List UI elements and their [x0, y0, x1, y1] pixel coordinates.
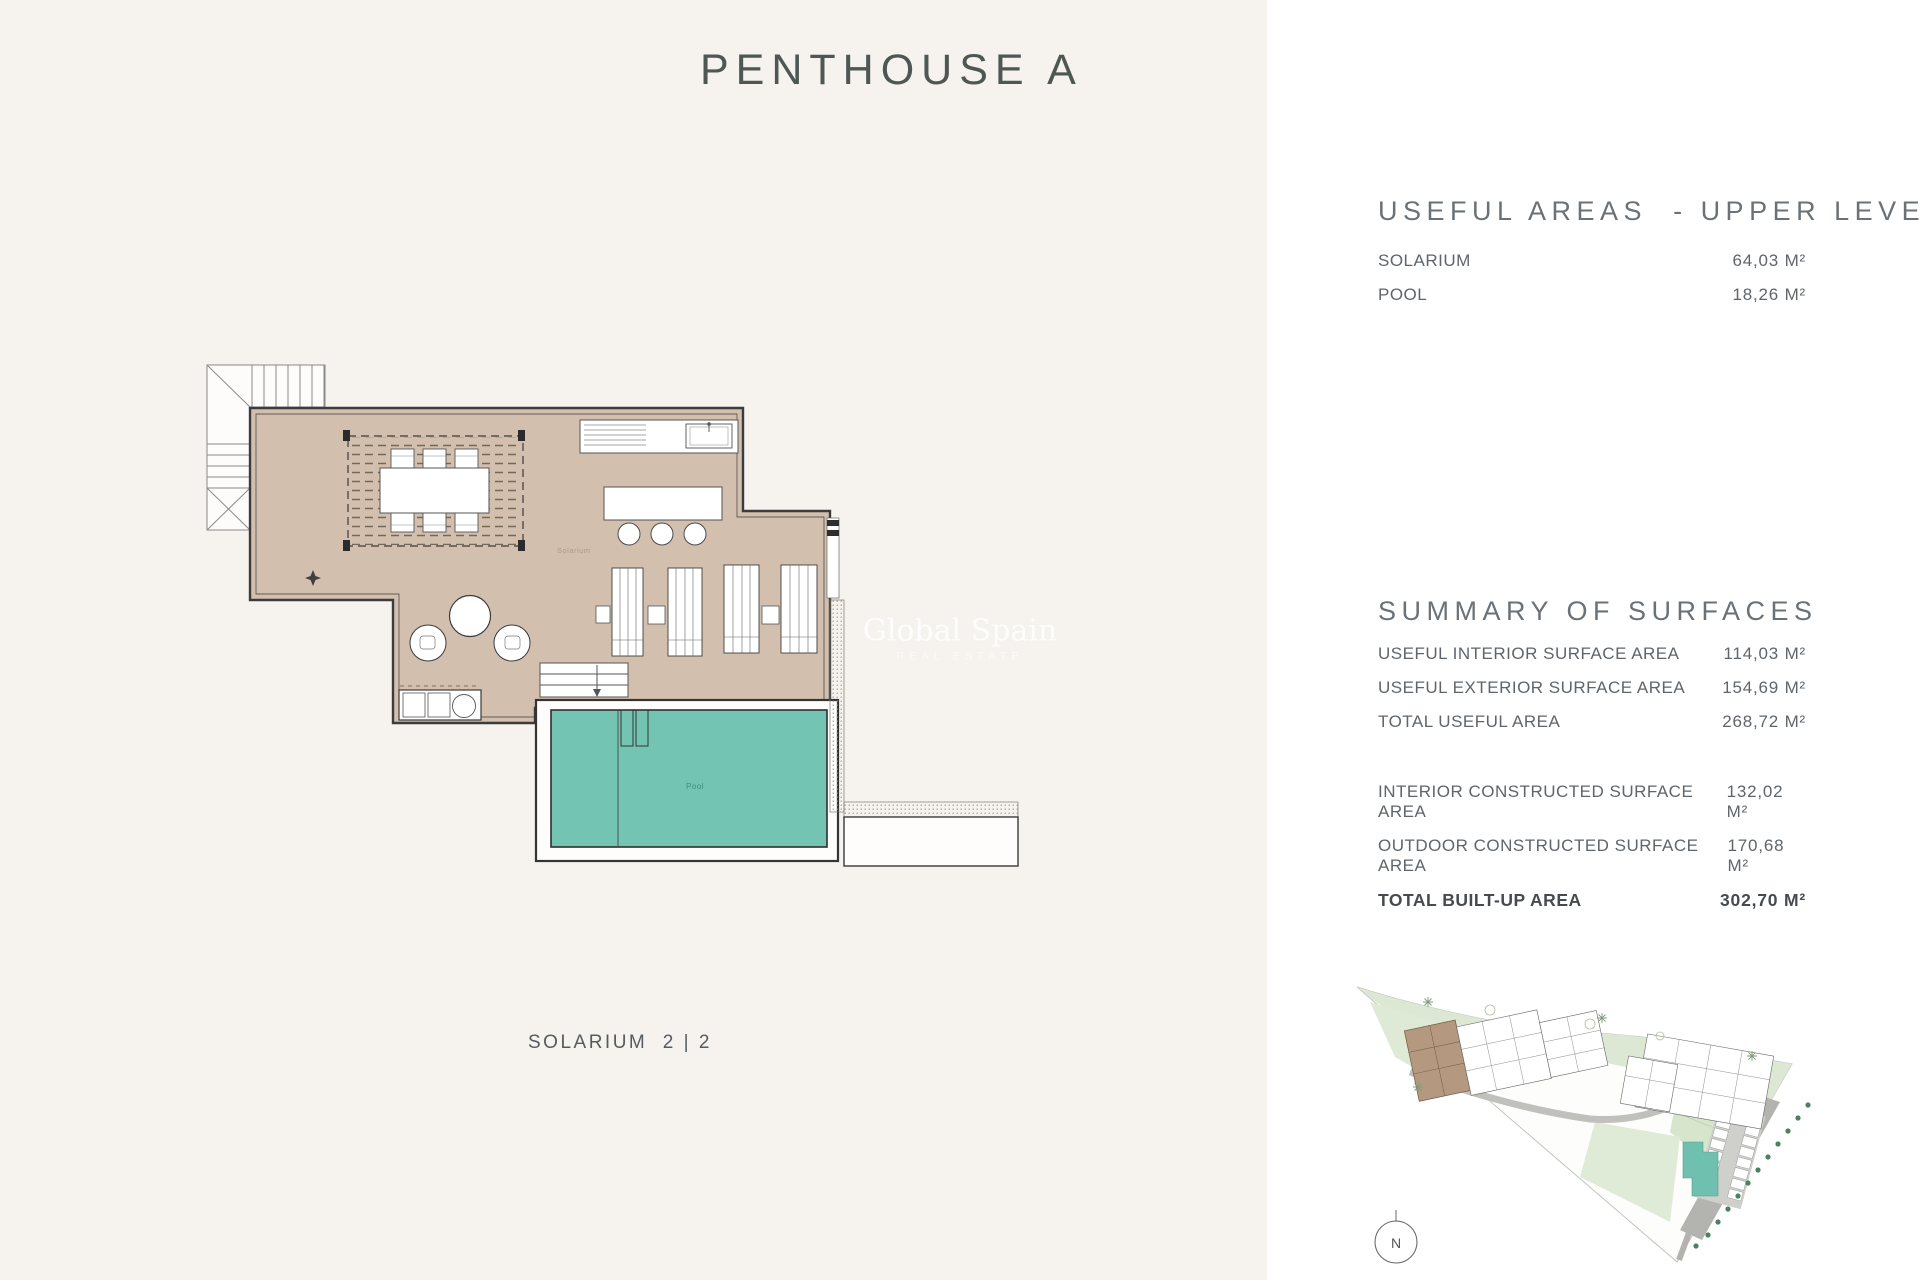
- table-row: USEFUL EXTERIOR SURFACE AREA 154,69 M²: [1378, 678, 1806, 698]
- egg-chair: [410, 625, 446, 661]
- row-value: 268,72 M²: [1722, 712, 1806, 732]
- row-label: OUTDOOR CONSTRUCTED SURFACE AREA: [1378, 836, 1728, 876]
- round-table: [450, 596, 491, 637]
- table-row: INTERIOR CONSTRUCTED SURFACE AREA 132,02…: [1378, 782, 1806, 822]
- row-label: INTERIOR CONSTRUCTED SURFACE AREA: [1378, 782, 1727, 822]
- egg-chair: [494, 625, 530, 661]
- pool-steps: [540, 663, 628, 697]
- compass-n-label: N: [1391, 1235, 1401, 1251]
- pool: [551, 710, 827, 847]
- dining-table: [380, 468, 489, 513]
- sliding-door: [827, 518, 839, 598]
- bbq-counter: [399, 686, 481, 720]
- row-value: 132,02 M²: [1727, 782, 1806, 822]
- plan-caption: SOLARIUM 2 | 2: [528, 1032, 712, 1054]
- table-row: TOTAL USEFUL AREA 268,72 M²: [1378, 712, 1806, 732]
- pool-deck: Pool: [536, 700, 838, 861]
- sink: [686, 422, 732, 448]
- table-row: USEFUL INTERIOR SURFACE AREA 114,03 M²: [1378, 644, 1806, 664]
- north-compass: N: [1375, 1210, 1417, 1263]
- summary-heading: SUMMARY OF SURFACES: [1378, 596, 1818, 627]
- row-label: POOL: [1378, 285, 1427, 305]
- bar-stools: [618, 523, 706, 545]
- site-plan: N: [1340, 972, 1860, 1280]
- page-title: PENTHOUSE A: [700, 46, 1083, 95]
- row-value: 64,03 M²: [1733, 251, 1807, 271]
- brochure-page: PENTHOUSE A USEFUL AREAS - UPPER LEVEL S…: [0, 0, 1920, 1280]
- row-label: TOTAL BUILT-UP AREA: [1378, 890, 1582, 911]
- terrace-label: Solarium: [557, 546, 591, 555]
- row-value: 302,70 M²: [1720, 890, 1806, 911]
- kitchen-counter: [580, 420, 738, 453]
- row-value: 18,26 M²: [1733, 285, 1807, 305]
- pergola: [343, 430, 525, 551]
- row-label: TOTAL USEFUL AREA: [1378, 712, 1560, 732]
- useful-areas-table: SOLARIUM 64,03 M² POOL 18,26 M²: [1378, 251, 1806, 319]
- row-label: USEFUL EXTERIOR SURFACE AREA: [1378, 678, 1685, 698]
- summary-table: USEFUL INTERIOR SURFACE AREA 114,03 M² U…: [1378, 644, 1806, 925]
- floor-plan-drawing: Pool Solarium: [185, 350, 1040, 885]
- row-label: USEFUL INTERIOR SURFACE AREA: [1378, 644, 1679, 664]
- row-value: 170,68 M²: [1728, 836, 1806, 876]
- row-value: 154,69 M²: [1722, 678, 1806, 698]
- pool-label: Pool: [686, 782, 704, 791]
- table-row: POOL 18,26 M²: [1378, 285, 1806, 305]
- planter: [844, 817, 1018, 866]
- table-row: OUTDOOR CONSTRUCTED SURFACE AREA 170,68 …: [1378, 836, 1806, 876]
- row-spacer: [1378, 746, 1806, 782]
- total-row: TOTAL BUILT-UP AREA 302,70 M²: [1378, 890, 1806, 911]
- row-value: 114,03 M²: [1724, 644, 1806, 664]
- useful-areas-heading: USEFUL AREAS - UPPER LEVEL: [1378, 196, 1920, 227]
- row-label: SOLARIUM: [1378, 251, 1471, 271]
- boundary-walls: [830, 600, 1018, 866]
- table-row: SOLARIUM 64,03 M²: [1378, 251, 1806, 271]
- kitchen-island: [604, 487, 722, 545]
